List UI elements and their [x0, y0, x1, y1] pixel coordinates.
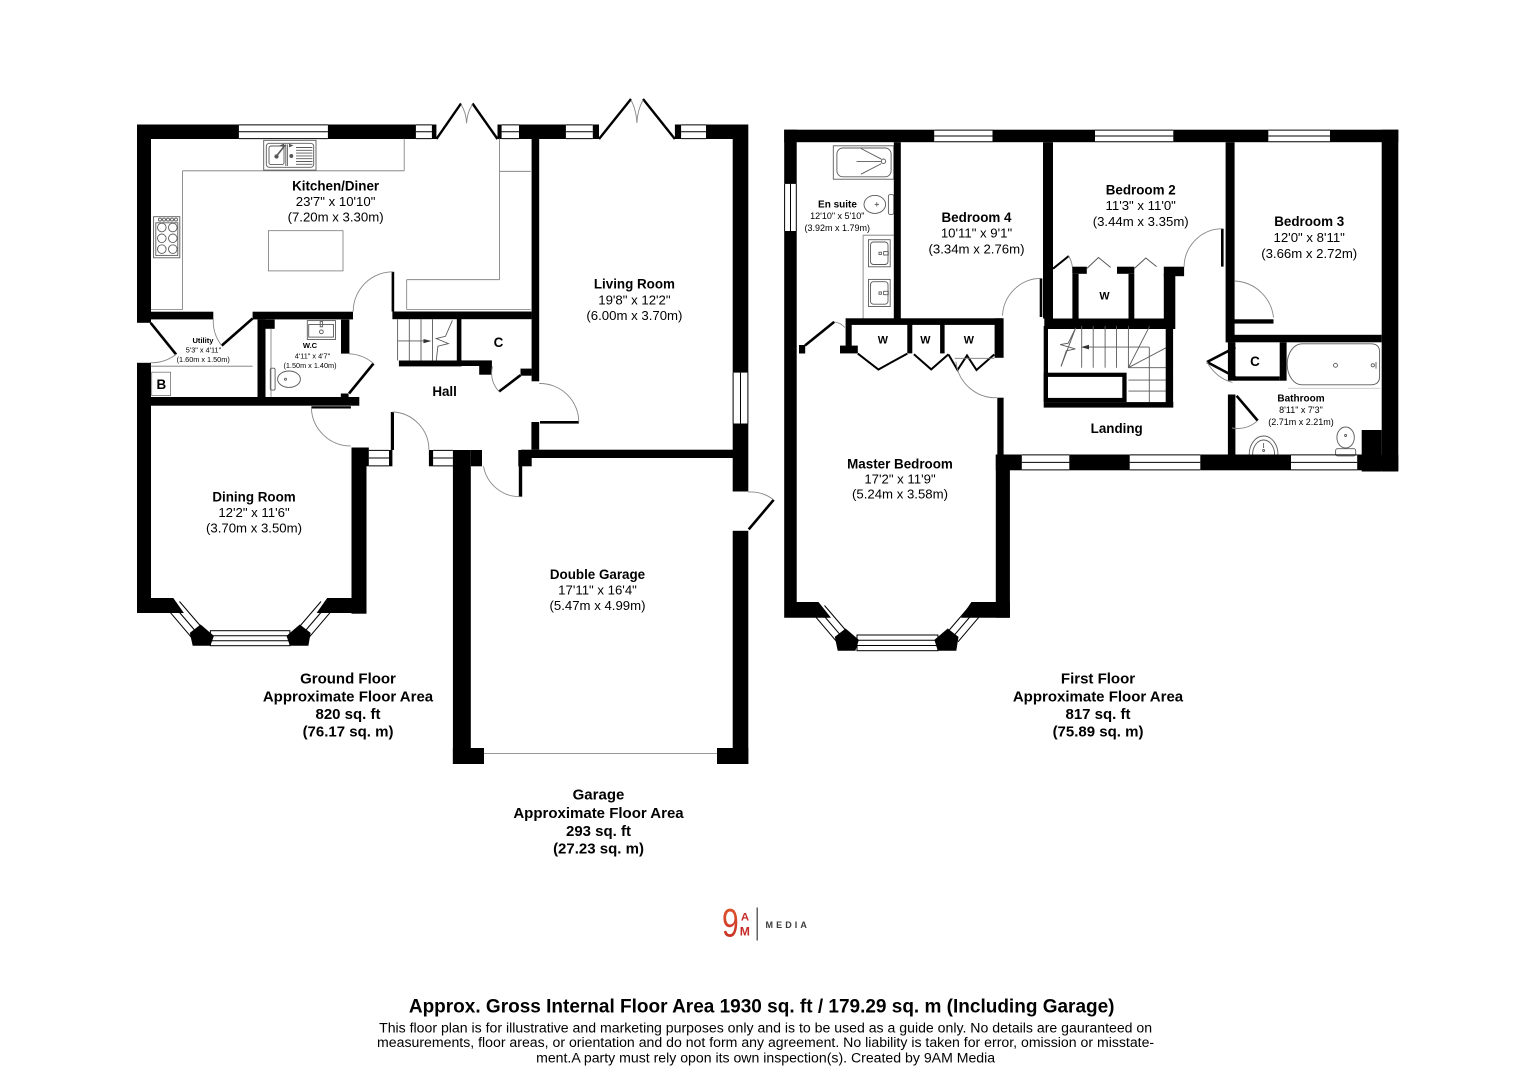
- svg-text:Approx. Gross Internal Floor A: Approx. Gross Internal Floor Area 1930 s…: [409, 997, 1115, 1018]
- svg-text:(6.00m x 3.70m): (6.00m x 3.70m): [586, 308, 682, 323]
- svg-text:(1.60m x 1.50m): (1.60m x 1.50m): [177, 355, 230, 364]
- svg-text:Double Garage: Double Garage: [550, 567, 645, 582]
- svg-text:(2.71m x 2.21m): (2.71m x 2.21m): [1268, 417, 1334, 427]
- svg-text:817 sq. ft: 817 sq. ft: [1065, 706, 1130, 723]
- svg-text:5'3" x 4'11": 5'3" x 4'11": [186, 345, 222, 354]
- svg-text:Kitchen/Diner: Kitchen/Diner: [292, 179, 380, 194]
- svg-text:W.C: W.C: [303, 341, 318, 350]
- svg-text:(5.47m x 4.99m): (5.47m x 4.99m): [549, 598, 645, 613]
- svg-text:Landing: Landing: [1091, 421, 1143, 436]
- svg-text:Bedroom 4: Bedroom 4: [942, 210, 1012, 225]
- svg-text:Utility: Utility: [192, 336, 214, 345]
- svg-text:W: W: [920, 335, 931, 347]
- svg-text:A: A: [741, 911, 749, 923]
- svg-text:W: W: [1099, 291, 1110, 303]
- svg-text:(3.34m x 2.76m): (3.34m x 2.76m): [928, 242, 1024, 257]
- svg-text:293 sq. ft: 293 sq. ft: [566, 823, 631, 840]
- svg-text:(5.24m x 3.58m): (5.24m x 3.58m): [852, 487, 948, 502]
- svg-text:12'10" x 5'10": 12'10" x 5'10": [810, 211, 864, 221]
- svg-text:(75.89 sq. m): (75.89 sq. m): [1053, 724, 1144, 741]
- svg-text:(1.50m x 1.40m): (1.50m x 1.40m): [283, 361, 336, 370]
- svg-text:Living Room: Living Room: [594, 277, 675, 292]
- svg-text:First Floor: First Floor: [1061, 671, 1135, 688]
- svg-text:C: C: [1250, 354, 1260, 369]
- svg-text:12'2" x 11'6": 12'2" x 11'6": [218, 505, 290, 520]
- svg-text:Bathroom: Bathroom: [1277, 393, 1324, 404]
- svg-text:Bedroom 3: Bedroom 3: [1274, 214, 1344, 229]
- svg-text:17'2" x 11'9": 17'2" x 11'9": [864, 472, 936, 487]
- svg-text:Approximate Floor Area: Approximate Floor Area: [1013, 689, 1184, 706]
- svg-text:Approximate Floor Area: Approximate Floor Area: [513, 805, 684, 822]
- svg-text:C: C: [494, 335, 504, 350]
- svg-text:(27.23 sq. m): (27.23 sq. m): [553, 841, 644, 858]
- svg-text:Ground Floor: Ground Floor: [300, 671, 396, 688]
- svg-text:MEDIA: MEDIA: [766, 920, 811, 930]
- svg-text:11'3" x 11'0": 11'3" x 11'0": [1106, 198, 1177, 213]
- svg-text:(3.92m x 1.79m): (3.92m x 1.79m): [805, 223, 871, 233]
- svg-text:W: W: [964, 335, 975, 347]
- svg-text:12'0" x 8'11": 12'0" x 8'11": [1274, 230, 1346, 245]
- svg-text:W: W: [878, 335, 889, 347]
- svg-text:19'8" x 12'2": 19'8" x 12'2": [598, 292, 671, 307]
- svg-text:Hall: Hall: [432, 384, 457, 399]
- svg-text:10'11" x 9'1": 10'11" x 9'1": [941, 226, 1013, 241]
- svg-text:Master Bedroom: Master Bedroom: [847, 457, 953, 472]
- svg-text:Garage: Garage: [573, 787, 625, 804]
- svg-text:(76.17 sq. m): (76.17 sq. m): [303, 724, 394, 741]
- svg-text:(7.20m x 3.30m): (7.20m x 3.30m): [288, 210, 384, 225]
- svg-text:(3.44m x 3.35m): (3.44m x 3.35m): [1093, 214, 1189, 229]
- svg-text:820 sq. ft: 820 sq. ft: [315, 706, 380, 723]
- svg-text:23'7" x 10'10": 23'7" x 10'10": [296, 194, 376, 209]
- svg-text:(3.70m x 3.50m): (3.70m x 3.50m): [206, 521, 302, 536]
- svg-text:Approximate Floor Area: Approximate Floor Area: [263, 689, 434, 706]
- svg-text:M: M: [740, 924, 750, 938]
- svg-text:4'11" x 4'7": 4'11" x 4'7": [295, 351, 331, 360]
- svg-text:17'11" x 16'4": 17'11" x 16'4": [558, 583, 637, 598]
- svg-text:B: B: [156, 377, 166, 392]
- svg-text:En suite: En suite: [818, 199, 857, 210]
- svg-text:8'11" x 7'3": 8'11" x 7'3": [1279, 405, 1323, 415]
- svg-text:(3.66m x 2.72m): (3.66m x 2.72m): [1261, 246, 1357, 261]
- svg-text:measurements, floor areas, or: measurements, floor areas, or orientatio…: [377, 1034, 1154, 1050]
- svg-text:9: 9: [722, 902, 739, 946]
- svg-text:Dining Room: Dining Room: [212, 490, 295, 505]
- svg-text:ment.A party must rely opon it: ment.A party must rely opon its own insp…: [536, 1049, 995, 1065]
- svg-text:Bedroom 2: Bedroom 2: [1106, 183, 1176, 198]
